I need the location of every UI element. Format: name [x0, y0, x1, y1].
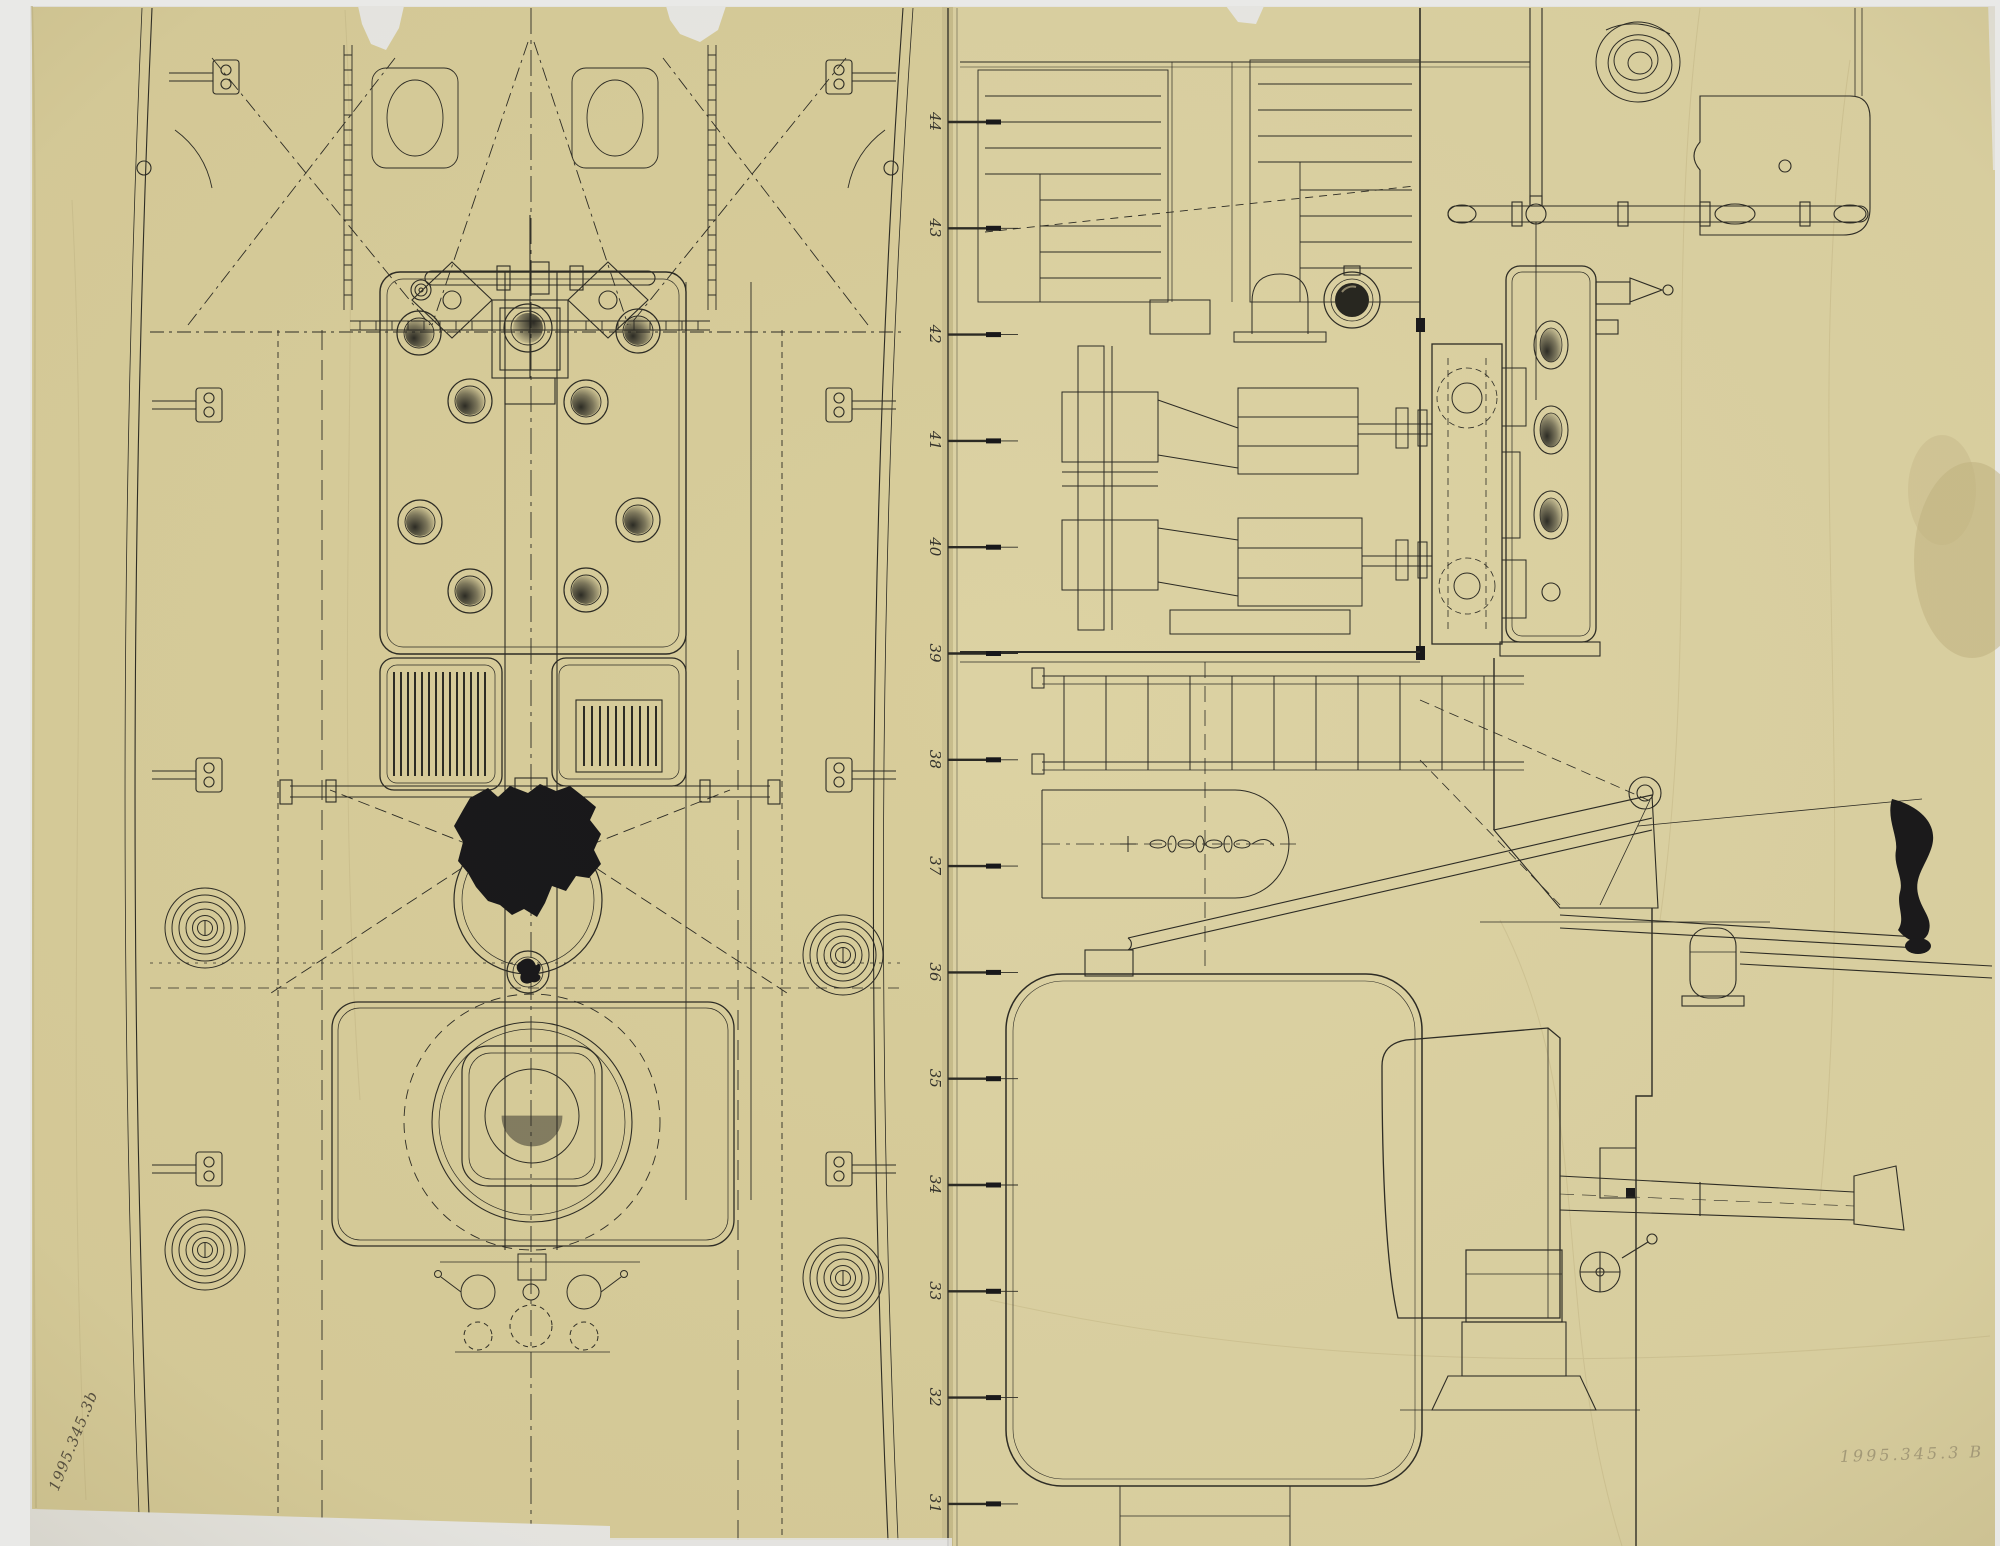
blueprint-canvas: 4443424140393837363534333231 1995.345.3b…	[0, 0, 2000, 1546]
photographed-blueprint: 4443424140393837363534333231 1995.345.3b…	[0, 0, 2000, 1546]
paper-vignette	[30, 6, 1995, 1546]
